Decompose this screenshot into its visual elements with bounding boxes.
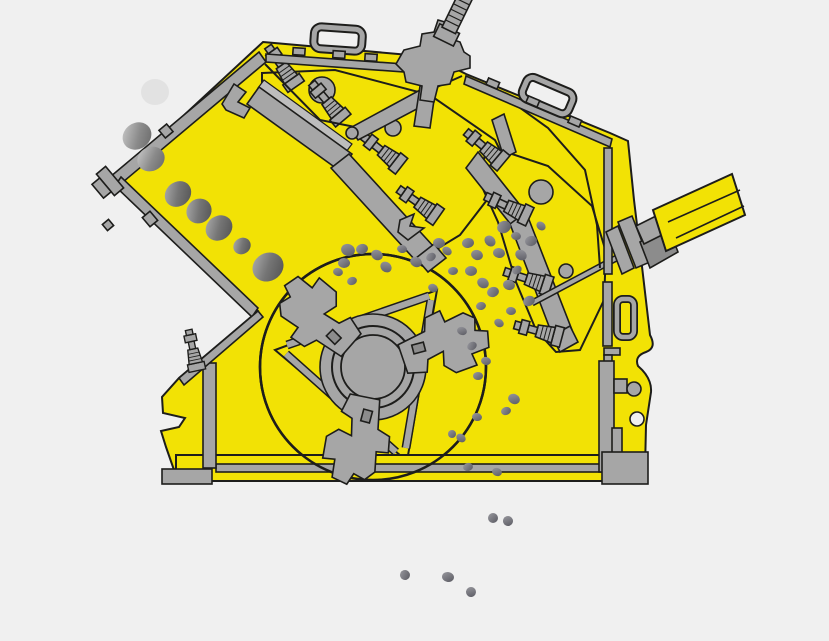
- rock-particle: [465, 266, 477, 276]
- rock-particle: [473, 372, 483, 380]
- right-wall-rib-upper: [604, 148, 612, 274]
- left-inner-wall: [203, 363, 216, 468]
- frame-bolt-head: [627, 382, 641, 396]
- rock-particle: [399, 569, 412, 582]
- rock-particle: [448, 430, 456, 438]
- rock-particle: [488, 513, 498, 523]
- crusher-drawing: [0, 0, 829, 641]
- right-foot: [602, 452, 648, 484]
- lifting-handle-left: [313, 26, 362, 51]
- right-column-bracket: [614, 379, 627, 393]
- right-wall-clip: [604, 348, 620, 355]
- cover-tab: [293, 48, 305, 56]
- frame-hole: [630, 412, 644, 426]
- cover-tab: [365, 54, 377, 62]
- apron-2-hole: [559, 264, 573, 278]
- base-rail: [216, 464, 602, 472]
- rock-particle: [464, 585, 478, 599]
- right-wall-rib-mid: [603, 282, 612, 346]
- chute-stud: [102, 219, 113, 230]
- impact-crusher-diagram: [0, 0, 829, 641]
- rock-particle: [141, 79, 169, 105]
- discharge-pebbles: [399, 513, 515, 599]
- apron-2-pivot-hole: [529, 180, 553, 204]
- left-foot: [162, 469, 212, 484]
- rock-particle: [338, 258, 350, 268]
- inlet-lip-bolt: [180, 328, 205, 372]
- rock-particle: [441, 571, 455, 583]
- apron-1-pivot-pin: [346, 127, 358, 139]
- rock-particle: [501, 514, 514, 527]
- cover-tab: [333, 51, 345, 59]
